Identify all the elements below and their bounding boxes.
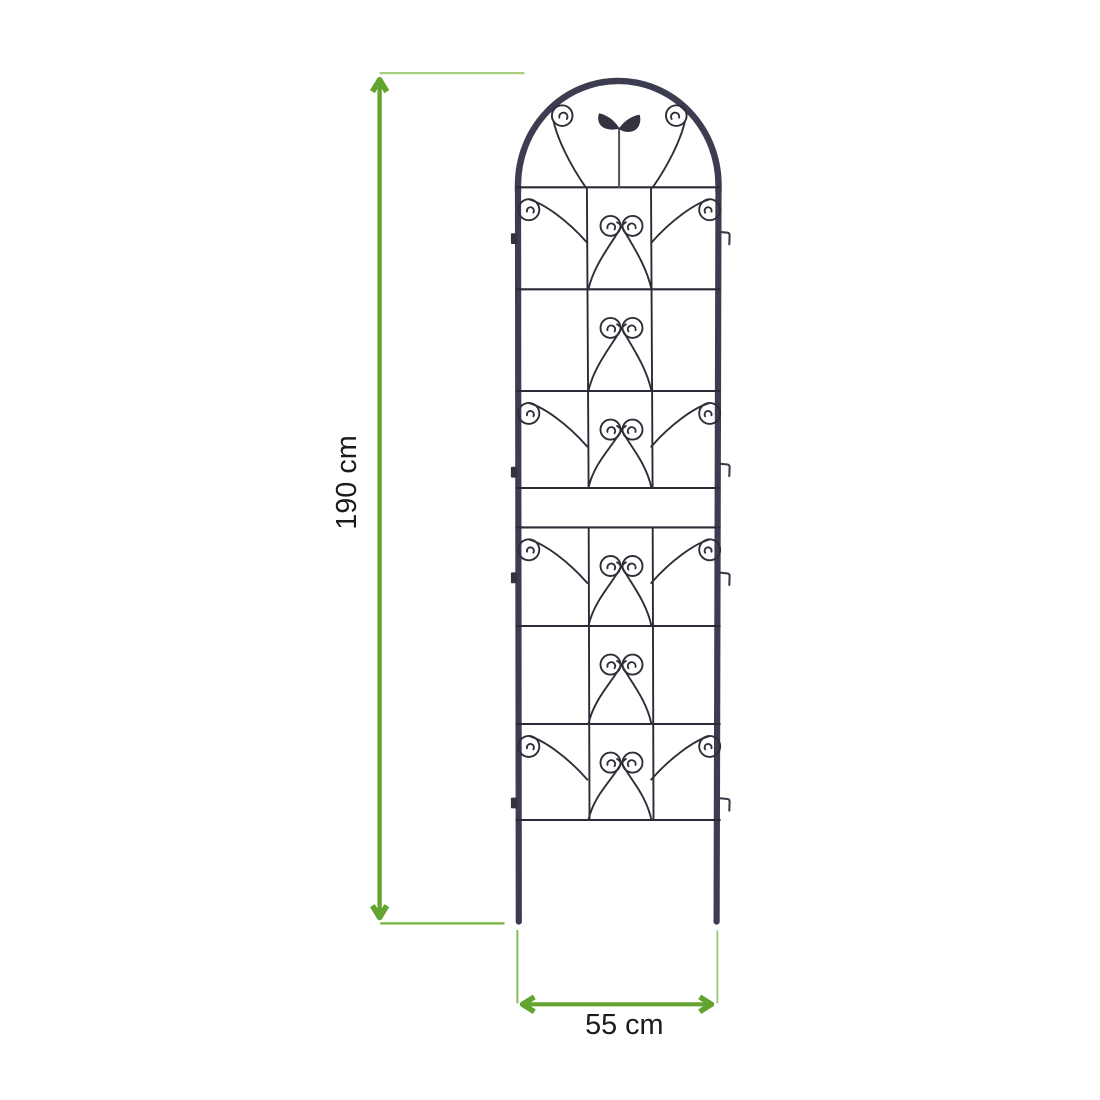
svg-text:55 cm: 55 cm <box>585 1009 663 1041</box>
svg-text:190 cm: 190 cm <box>331 435 363 529</box>
